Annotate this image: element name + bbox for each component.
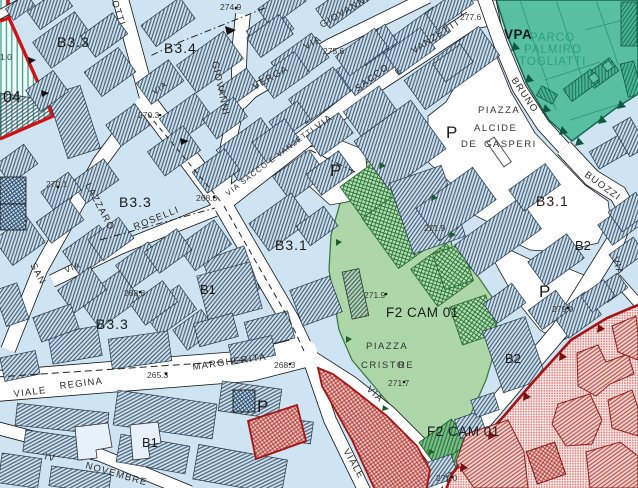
svg-text:B1: B1 (142, 435, 158, 450)
svg-text:PIAZZA: PIAZZA (366, 341, 408, 352)
svg-text:268.3: 268.3 (274, 360, 296, 370)
svg-text:277.6: 277.6 (460, 12, 482, 22)
svg-text:PALMIRO: PALMIRO (524, 44, 582, 56)
svg-text:275.6: 275.6 (323, 46, 345, 56)
svg-text:TOGLIATTI: TOGLIATTI (519, 56, 586, 68)
svg-text:B3.4: B3.4 (164, 40, 197, 56)
svg-text:P: P (257, 397, 268, 416)
svg-text:B3.1: B3.1 (536, 193, 569, 209)
svg-text:04: 04 (3, 89, 21, 106)
svg-text:DE: DE (461, 139, 477, 150)
svg-text:VPA: VPA (504, 27, 532, 42)
svg-text:271.0: 271.0 (436, 473, 458, 483)
svg-text:ALCIDE: ALCIDE (474, 123, 517, 134)
svg-text:B3.3: B3.3 (119, 194, 152, 210)
svg-text:P: P (539, 282, 550, 301)
svg-text:270.3: 270.3 (138, 110, 160, 120)
svg-text:P: P (330, 161, 341, 180)
svg-text:B1: B1 (200, 282, 216, 297)
svg-text:1.0: 1.0 (0, 52, 12, 62)
svg-text:B2: B2 (505, 351, 521, 366)
svg-text:PIAZZA: PIAZZA (478, 105, 520, 116)
svg-text:279.0: 279.0 (552, 304, 574, 314)
svg-text:270.1: 270.1 (46, 179, 68, 189)
svg-text:F2 CAM 01: F2 CAM 01 (427, 424, 500, 439)
svg-text:P: P (446, 123, 457, 142)
svg-text:B3.1: B3.1 (275, 237, 308, 253)
svg-text:F2 CAM 01: F2 CAM 01 (386, 305, 459, 320)
svg-text:271.9: 271.9 (424, 223, 446, 233)
svg-text:B2: B2 (575, 238, 591, 253)
svg-text:RE: RE (398, 360, 414, 371)
svg-text:B3.3: B3.3 (57, 34, 90, 50)
svg-text:274.9: 274.9 (220, 2, 242, 12)
svg-text:268.8: 268.8 (124, 288, 146, 298)
svg-text:B3.3: B3.3 (96, 316, 129, 332)
svg-text:PARCO: PARCO (530, 32, 575, 44)
svg-text:271.7: 271.7 (388, 378, 410, 388)
svg-text:GASPERI: GASPERI (484, 139, 537, 150)
svg-text:271.9: 271.9 (364, 290, 386, 300)
